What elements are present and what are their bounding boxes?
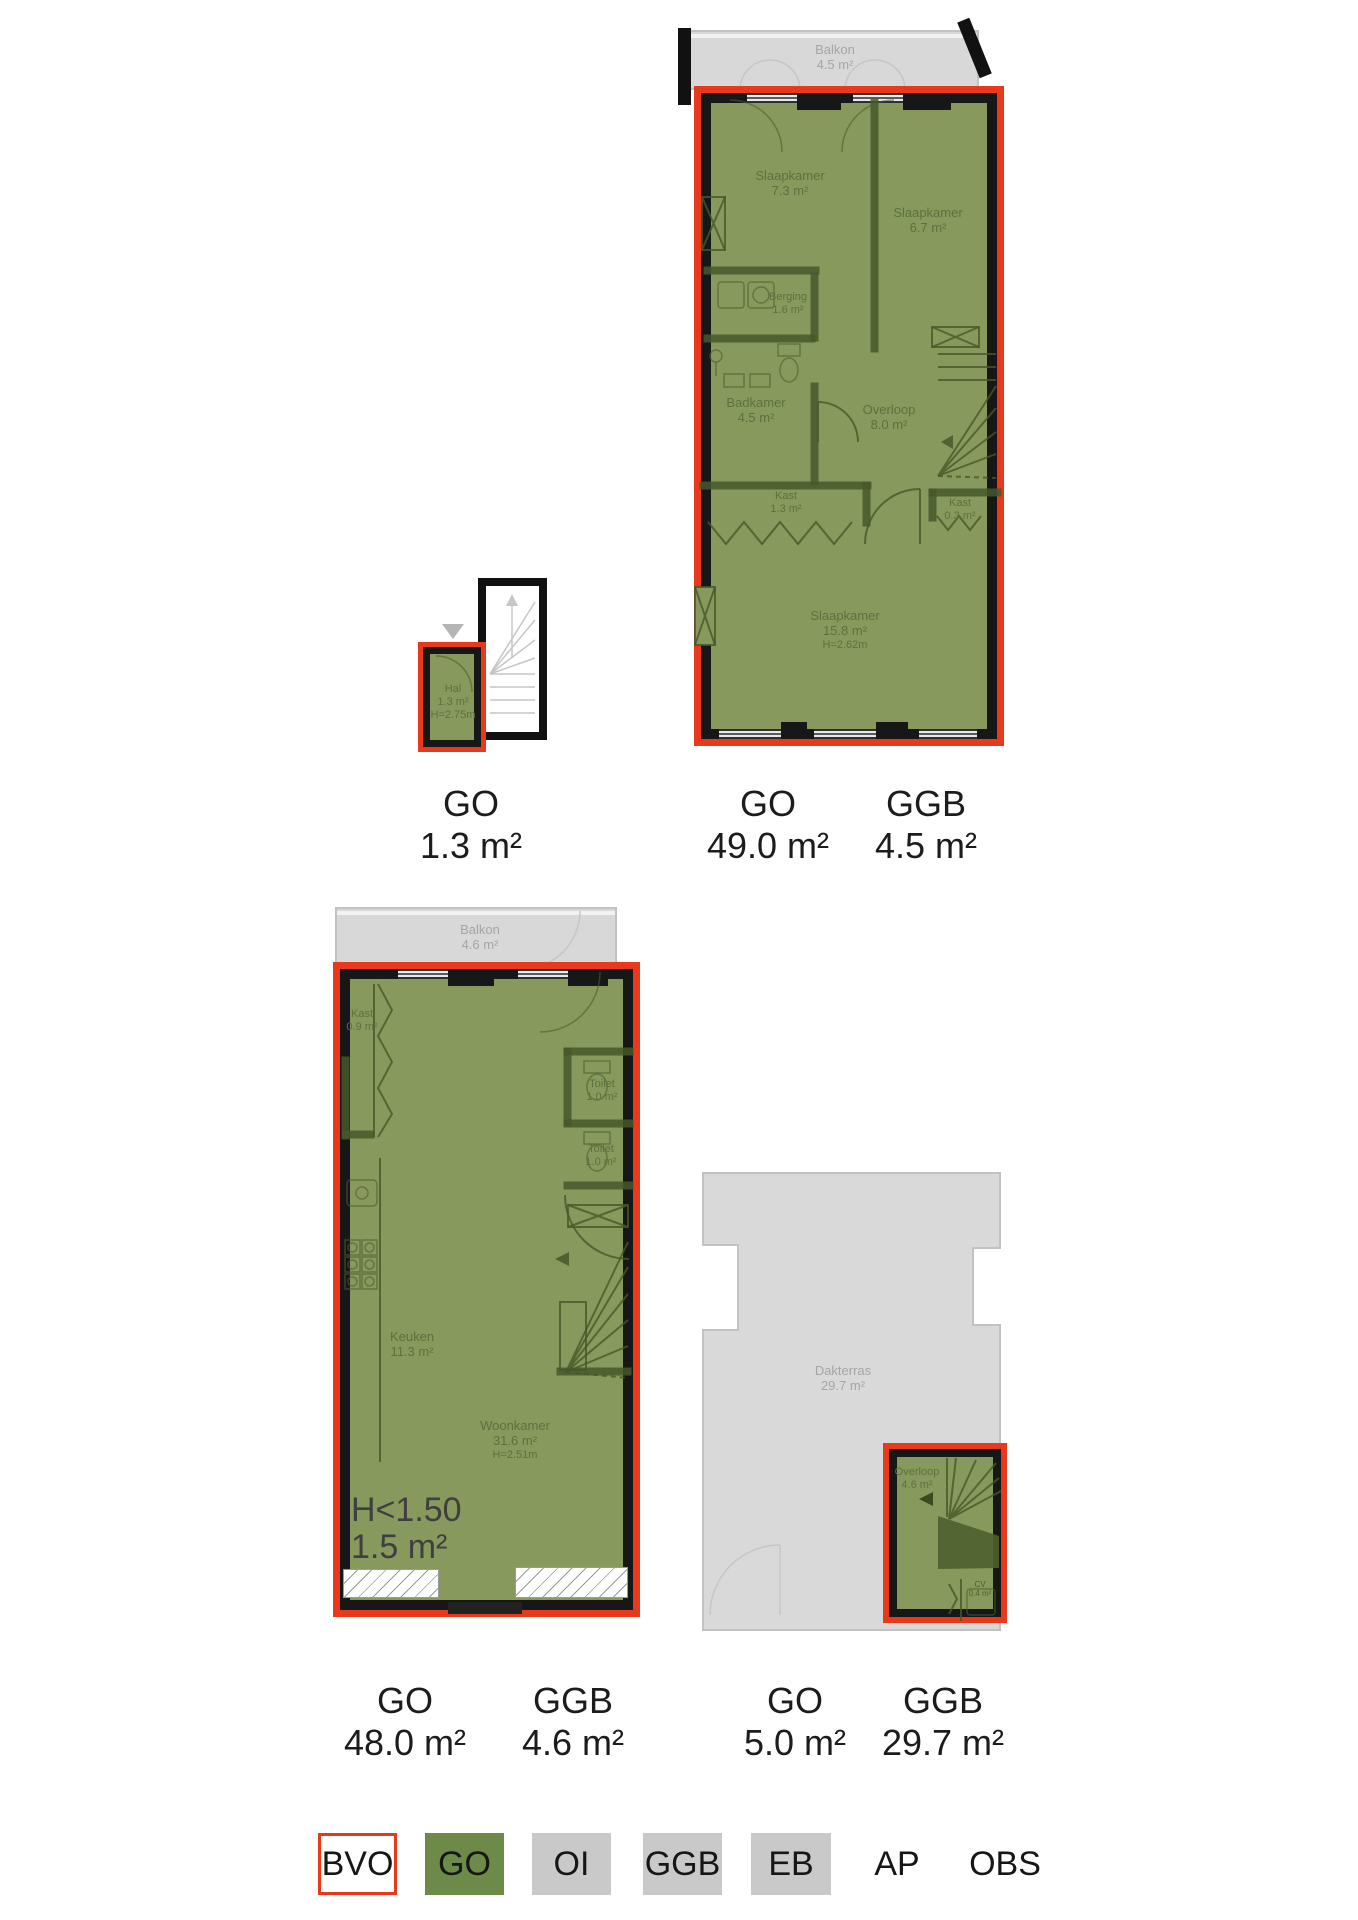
- legend-item-obs: OBS: [960, 1833, 1050, 1895]
- legend-item-bvo: BVO: [318, 1833, 397, 1895]
- metric-ground-ggb: GGB 4.6 m²: [488, 1680, 658, 1764]
- room-label-kast-1: Kast 1.3 m²: [741, 490, 831, 516]
- room-label-slaapkamer-2: Slaapkamer 6.7 m²: [868, 205, 988, 235]
- room-label-toilet-1: Toilet 1.0 m²: [557, 1078, 647, 1104]
- room-label-woonkamer: Woonkamer 31.6 m² H=2.51m: [455, 1418, 575, 1463]
- hatched-area-left: [343, 1569, 439, 1598]
- legend-item-oi: OI: [532, 1833, 611, 1895]
- room-label-overloop-roof: Overloop 4.6 m²: [872, 1466, 962, 1492]
- room-label-slaapkamer-1: Slaapkamer 7.3 m²: [730, 168, 850, 198]
- room-label-badkamer: Badkamer 4.5 m²: [696, 395, 816, 425]
- room-label-slaapkamer-3: Slaapkamer 15.8 m² H=2.62m: [785, 608, 905, 653]
- metric-ground-go: GO 48.0 m²: [320, 1680, 490, 1764]
- room-label-kast-ground: Kast 0.9 m²: [317, 1008, 407, 1034]
- room-label-overloop-upper: Overloop 8.0 m²: [829, 402, 949, 432]
- room-label-hal: Hal 1.3 m² H=2.75m: [408, 683, 498, 722]
- legend-item-ap: AP: [857, 1833, 937, 1895]
- hatched-area-right: [515, 1567, 628, 1598]
- room-label-balkon-upper: Balkon 4.5 m²: [775, 42, 895, 72]
- room-label-balkon-ground: Balkon 4.6 m²: [420, 922, 540, 952]
- balkon-upper-area: 4.5 m²: [775, 57, 895, 72]
- room-label-dakterras: Dakterras 29.7 m²: [783, 1363, 903, 1393]
- room-label-cv: CV 0.4 m²: [958, 1580, 1002, 1598]
- legend-item-eb: EB: [751, 1833, 831, 1895]
- balkon-upper-name: Balkon: [775, 42, 895, 57]
- entry-marker-triangle: [442, 624, 464, 639]
- metric-upper-go: GO 49.0 m²: [683, 783, 853, 867]
- room-label-kast-2: Kast 0.3 m²: [915, 497, 1005, 523]
- room-label-toilet-2: Toilet 1.0 m²: [556, 1143, 646, 1169]
- metric-roof-ggb: GGB 29.7 m²: [858, 1680, 1028, 1764]
- balcony-upper-wall-left: [678, 28, 691, 105]
- low-height-note: H<1.50 1.5 m²: [351, 1492, 462, 1566]
- legend-item-ggb: GGB: [643, 1833, 722, 1895]
- floorplan-measurement-page: Balkon 4.5 m²: [0, 0, 1358, 1920]
- room-label-keuken: Keuken 11.3 m²: [352, 1329, 472, 1359]
- metric-upper-ggb: GGB 4.5 m²: [841, 783, 1011, 867]
- metric-hal-go: GO 1.3 m²: [386, 783, 556, 867]
- room-label-berging: Berging 1.6 m²: [743, 291, 833, 317]
- metric-roof-go: GO 5.0 m²: [710, 1680, 880, 1764]
- legend-item-go: GO: [425, 1833, 504, 1895]
